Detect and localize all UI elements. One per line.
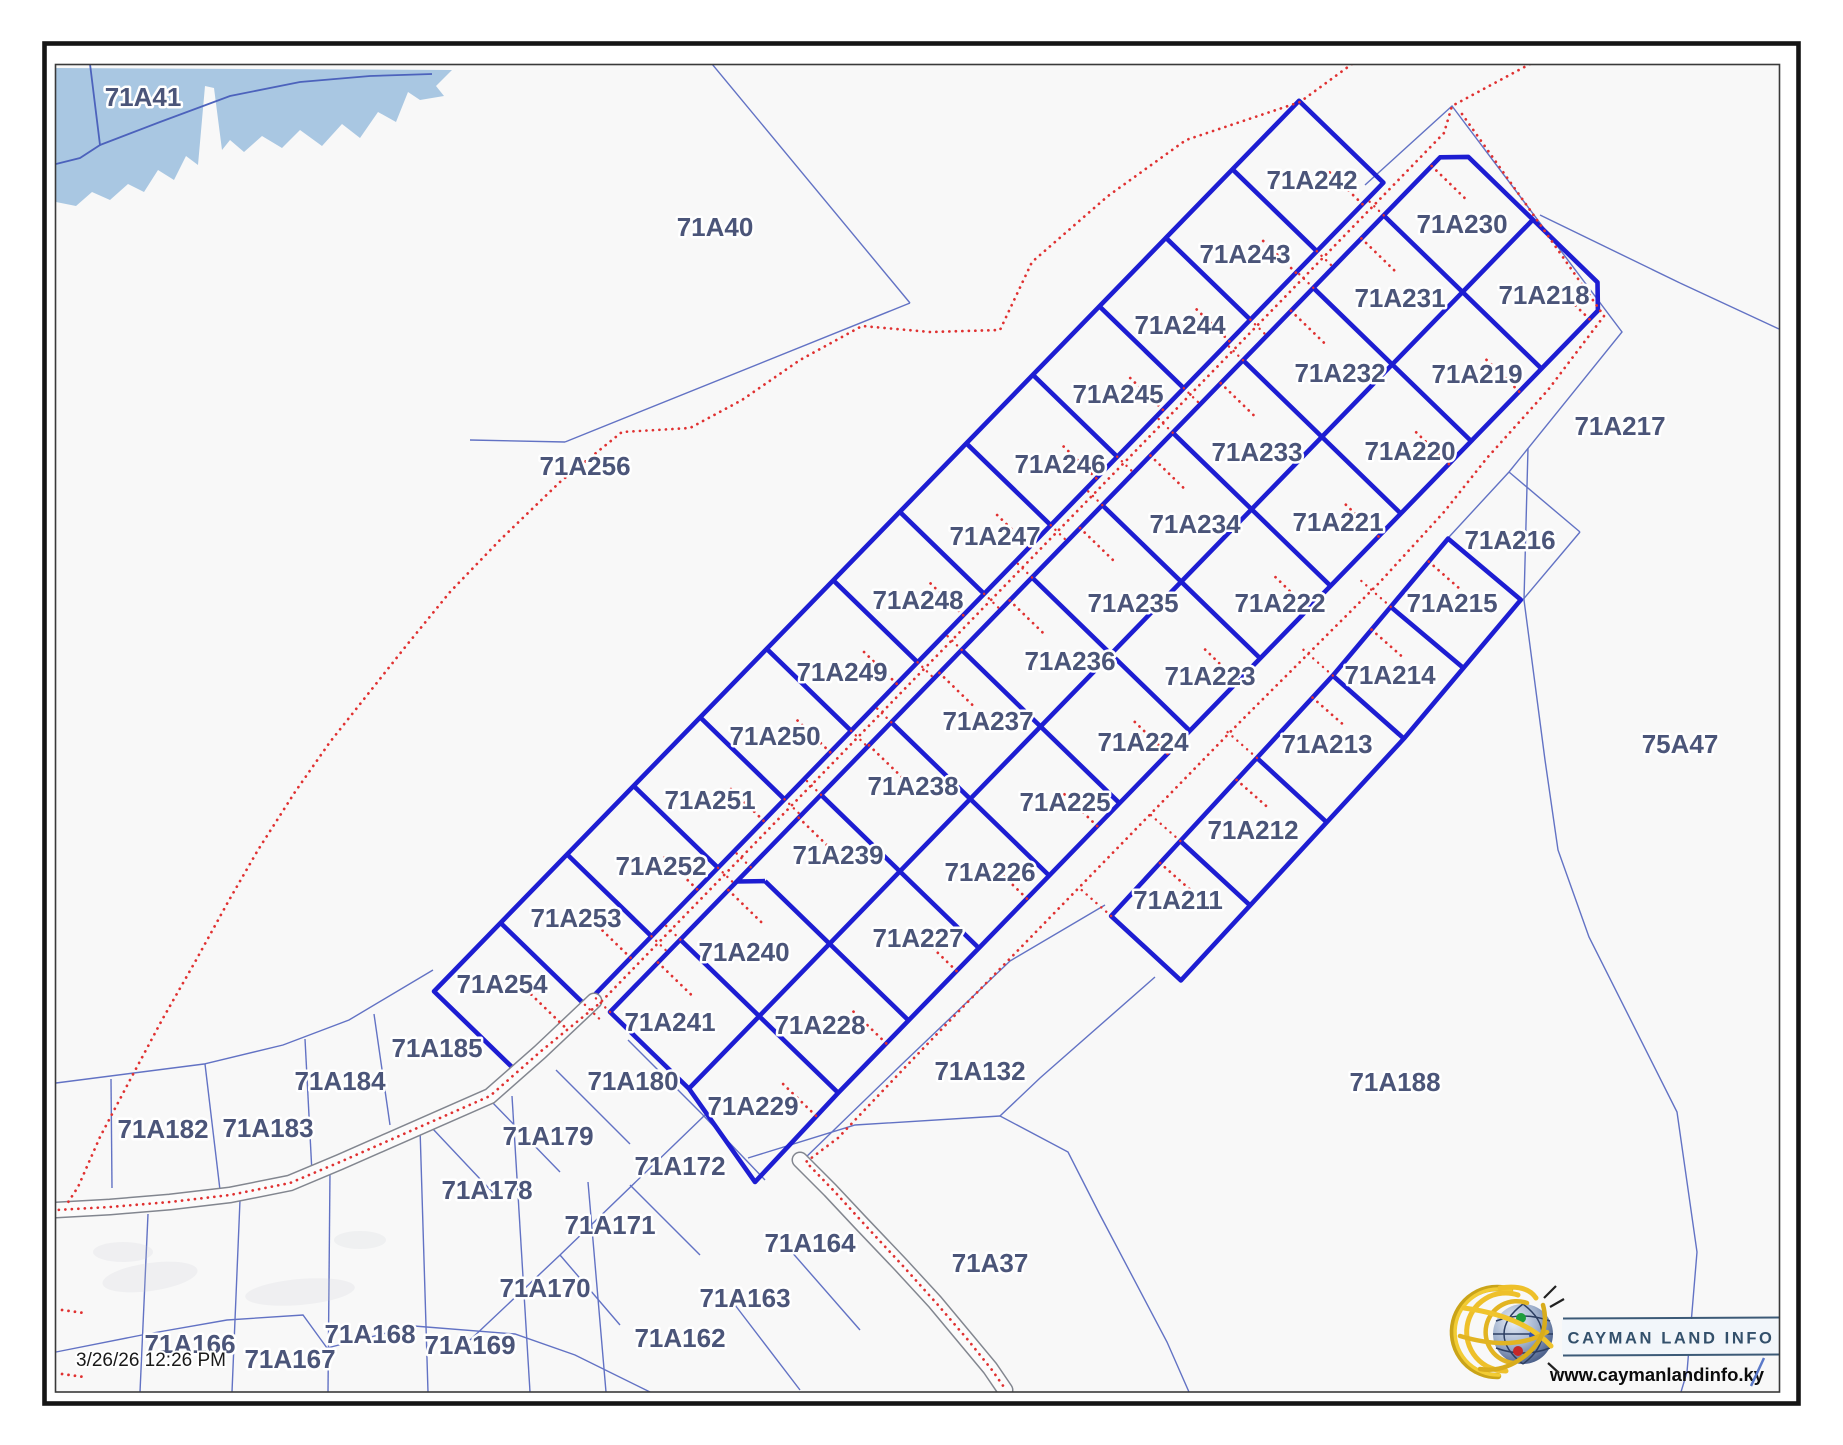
svg-text:71A217: 71A217 [1574, 411, 1665, 441]
svg-text:71A41: 71A41 [105, 82, 182, 112]
svg-text:71A239: 71A239 [792, 840, 883, 870]
svg-text:71A183: 71A183 [222, 1113, 313, 1143]
svg-text:71A172: 71A172 [634, 1151, 725, 1181]
svg-text:71A235: 71A235 [1087, 588, 1178, 618]
svg-text:71A162: 71A162 [634, 1323, 725, 1353]
svg-text:71A167: 71A167 [244, 1344, 335, 1374]
svg-text:71A248: 71A248 [872, 585, 963, 615]
svg-text:71A245: 71A245 [1072, 379, 1163, 409]
svg-text:71A184: 71A184 [294, 1066, 386, 1096]
svg-text:71A243: 71A243 [1199, 239, 1290, 269]
svg-text:71A247: 71A247 [949, 521, 1040, 551]
svg-text:71A256: 71A256 [539, 451, 630, 481]
svg-text:71A242: 71A242 [1266, 165, 1357, 195]
svg-text:71A170: 71A170 [499, 1273, 590, 1303]
svg-text:75A47: 75A47 [1642, 729, 1719, 759]
svg-text:71A238: 71A238 [867, 771, 958, 801]
svg-text:71A229: 71A229 [707, 1091, 798, 1121]
svg-text:71A212: 71A212 [1207, 815, 1298, 845]
svg-text:71A171: 71A171 [564, 1210, 655, 1240]
svg-text:71A225: 71A225 [1019, 787, 1110, 817]
svg-text:71A250: 71A250 [729, 721, 820, 751]
svg-text:CAYMAN LAND INFO: CAYMAN LAND INFO [1568, 1330, 1775, 1348]
svg-text:71A252: 71A252 [615, 851, 706, 881]
svg-text:71A241: 71A241 [624, 1007, 715, 1037]
svg-text:71A227: 71A227 [872, 923, 963, 953]
svg-text:www.caymanlandinfo.ky: www.caymanlandinfo.ky [1549, 1364, 1765, 1385]
svg-text:71A251: 71A251 [664, 785, 755, 815]
svg-text:71A226: 71A226 [944, 857, 1035, 887]
svg-text:71A169: 71A169 [424, 1330, 515, 1360]
svg-text:71A178: 71A178 [441, 1175, 532, 1205]
svg-text:71A185: 71A185 [391, 1033, 482, 1063]
svg-text:71A223: 71A223 [1164, 661, 1255, 691]
svg-text:71A37: 71A37 [952, 1248, 1029, 1278]
svg-text:71A237: 71A237 [942, 706, 1033, 736]
svg-text:71A240: 71A240 [698, 937, 789, 967]
svg-text:71A164: 71A164 [764, 1228, 856, 1258]
svg-text:71A132: 71A132 [934, 1056, 1025, 1086]
svg-text:71A215: 71A215 [1406, 588, 1497, 618]
svg-text:71A232: 71A232 [1294, 358, 1385, 388]
svg-text:71A211: 71A211 [1133, 885, 1223, 915]
svg-text:71A179: 71A179 [502, 1121, 593, 1151]
svg-text:71A163: 71A163 [699, 1283, 790, 1313]
svg-text:71A216: 71A216 [1464, 525, 1555, 555]
svg-text:71A221: 71A221 [1292, 507, 1383, 537]
svg-text:71A236: 71A236 [1024, 646, 1115, 676]
svg-text:71A230: 71A230 [1416, 209, 1507, 239]
svg-text:71A40: 71A40 [677, 212, 754, 242]
svg-text:71A218: 71A218 [1498, 280, 1589, 310]
svg-text:71A249: 71A249 [796, 657, 887, 687]
svg-text:71A188: 71A188 [1349, 1067, 1440, 1097]
svg-text:71A234: 71A234 [1149, 509, 1241, 539]
svg-text:71A220: 71A220 [1364, 436, 1455, 466]
svg-text:71A228: 71A228 [774, 1010, 865, 1040]
svg-text:71A182: 71A182 [117, 1114, 208, 1144]
svg-text:71A168: 71A168 [324, 1319, 415, 1349]
svg-text:71A222: 71A222 [1234, 588, 1325, 618]
svg-text:3/26/26 12:26 PM: 3/26/26 12:26 PM [76, 1350, 226, 1371]
svg-text:71A214: 71A214 [1344, 660, 1436, 690]
svg-text:71A244: 71A244 [1134, 310, 1226, 340]
svg-text:71A219: 71A219 [1431, 359, 1522, 389]
svg-text:71A233: 71A233 [1211, 437, 1302, 467]
svg-text:71A253: 71A253 [530, 903, 621, 933]
svg-text:71A180: 71A180 [587, 1066, 678, 1096]
svg-text:71A231: 71A231 [1354, 283, 1445, 313]
svg-text:71A213: 71A213 [1281, 729, 1372, 759]
svg-text:71A254: 71A254 [456, 969, 548, 999]
svg-text:71A246: 71A246 [1014, 449, 1105, 479]
svg-text:71A224: 71A224 [1097, 727, 1189, 757]
